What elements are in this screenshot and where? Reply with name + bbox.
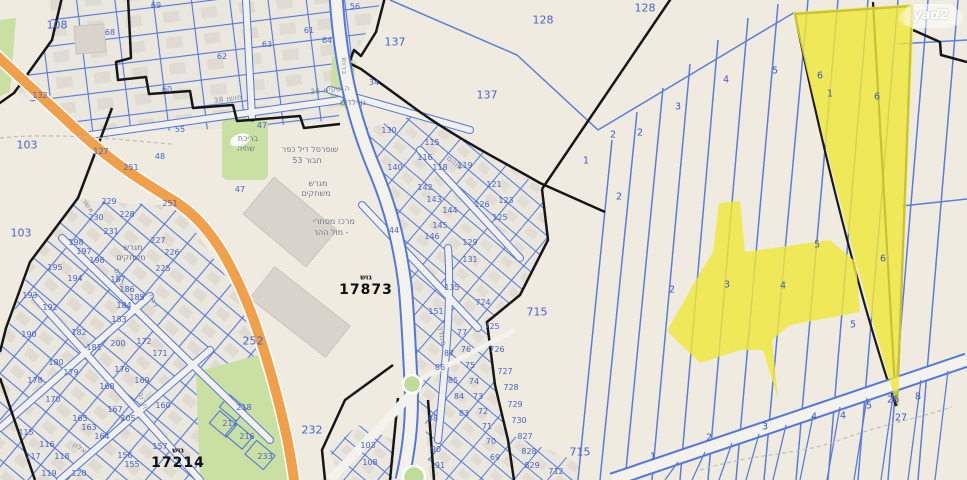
- watermark-text: yad2: [903, 8, 959, 23]
- map-stage: 1371371281281031031087157152322526869606…: [0, 0, 967, 480]
- yad2-watermark: yad2: [903, 2, 961, 32]
- map-canvas: [0, 0, 967, 480]
